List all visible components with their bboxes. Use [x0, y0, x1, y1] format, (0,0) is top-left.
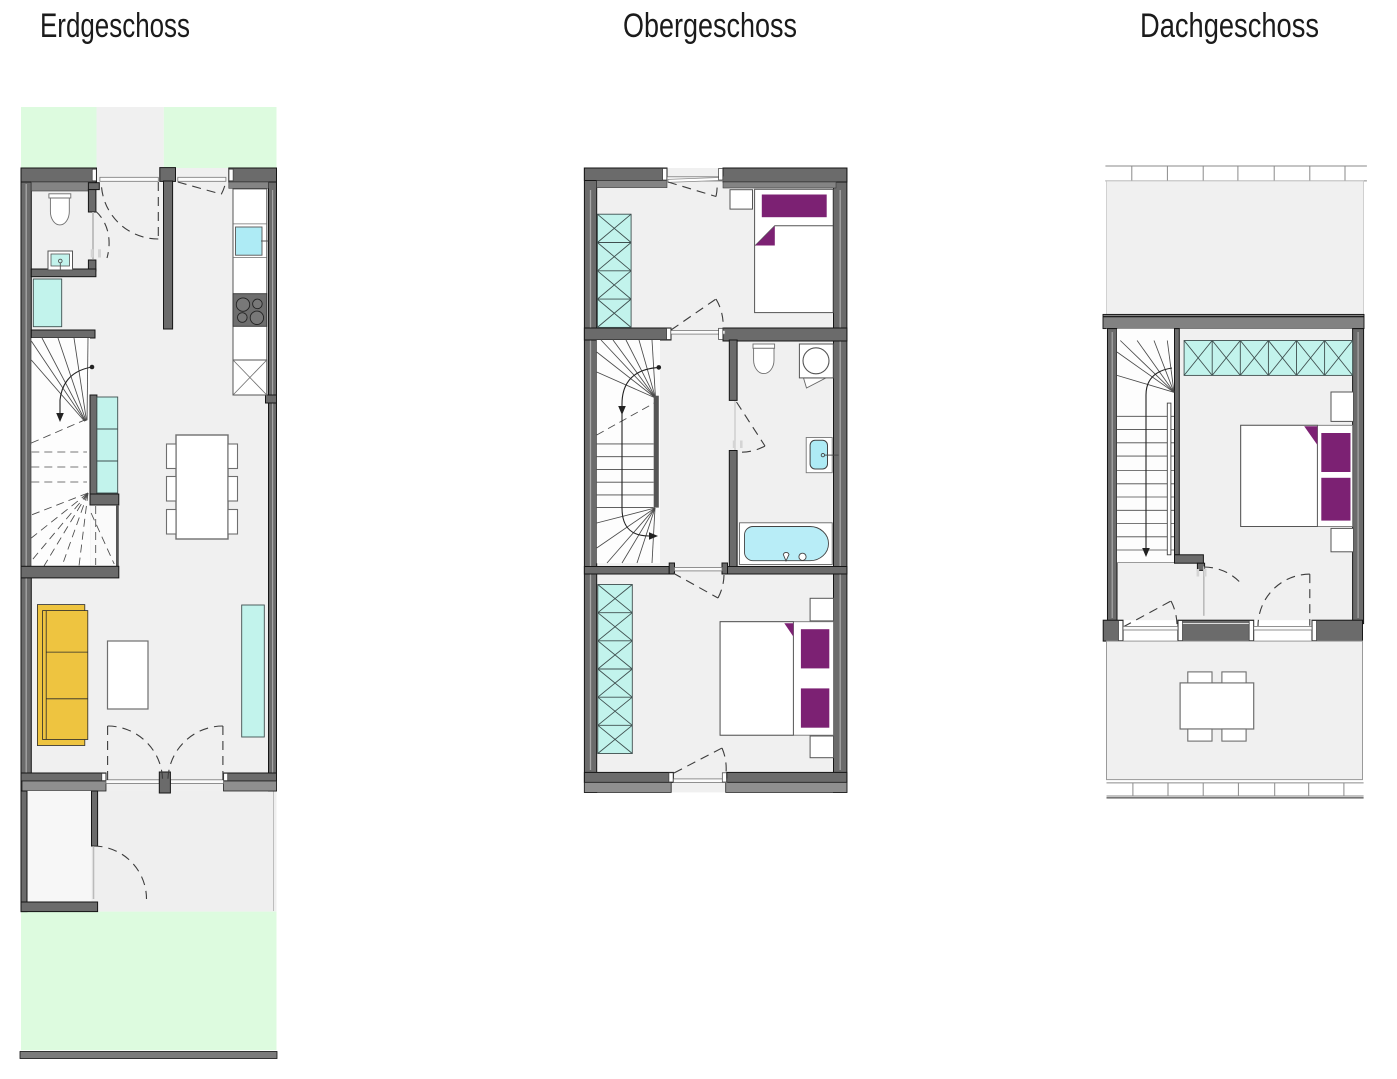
svg-text:Obergeschoss: Obergeschoss	[623, 7, 797, 45]
svg-text:Erdgeschoss: Erdgeschoss	[40, 7, 190, 45]
svg-text:Dachgeschoss: Dachgeschoss	[1140, 7, 1319, 45]
